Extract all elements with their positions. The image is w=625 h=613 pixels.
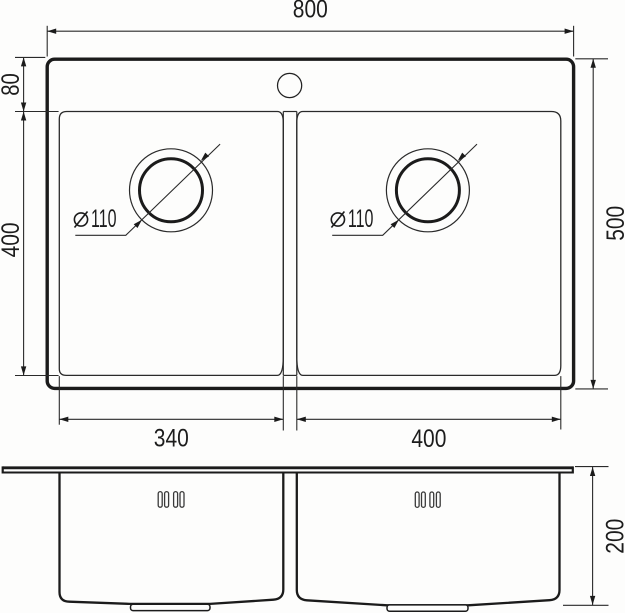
svg-text:400: 400 bbox=[0, 222, 25, 257]
svg-text:200: 200 bbox=[602, 519, 625, 554]
svg-text:400: 400 bbox=[411, 425, 446, 453]
svg-text:80: 80 bbox=[0, 73, 25, 96]
svg-text:110: 110 bbox=[348, 205, 374, 233]
svg-text:500: 500 bbox=[602, 206, 625, 241]
svg-text:110: 110 bbox=[91, 205, 117, 233]
svg-text:340: 340 bbox=[154, 424, 189, 452]
svg-text:800: 800 bbox=[293, 0, 328, 24]
